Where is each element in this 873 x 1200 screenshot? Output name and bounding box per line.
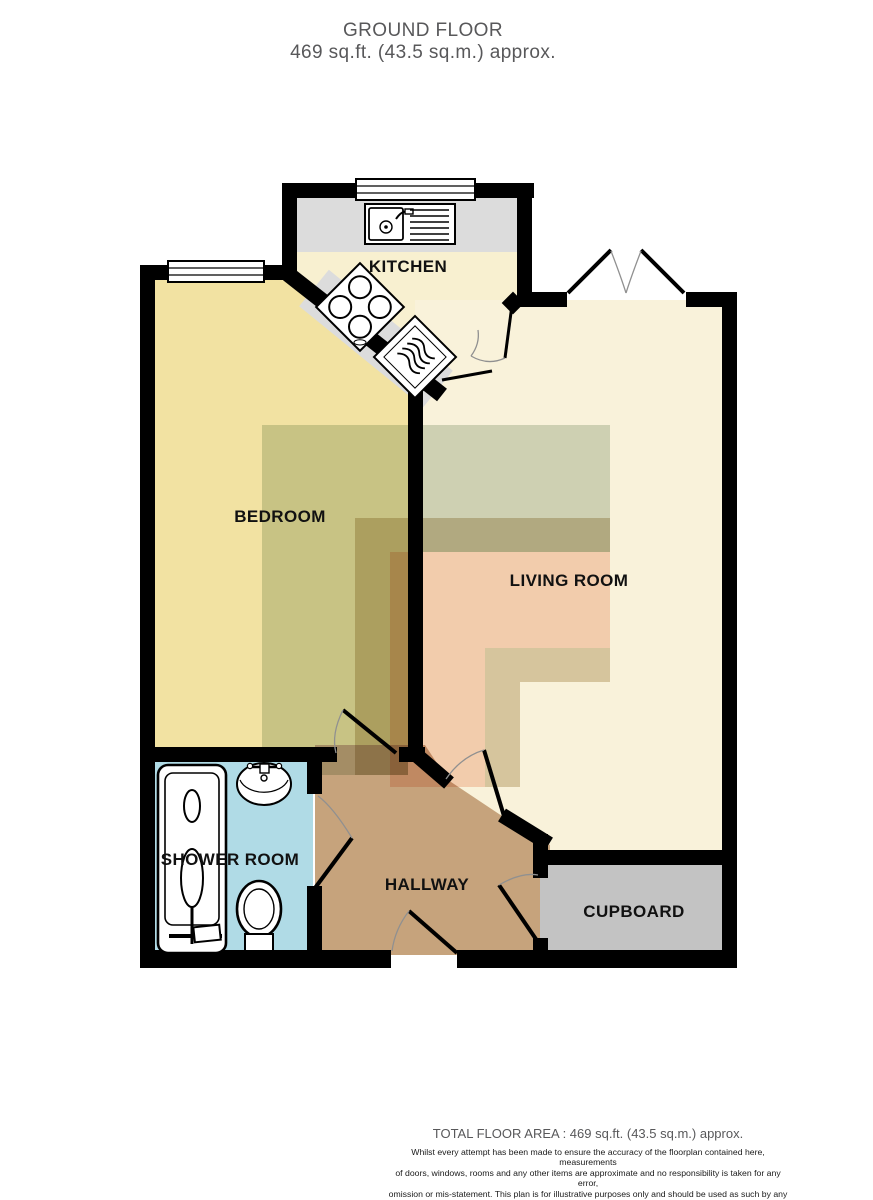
kitchen-label: KITCHEN bbox=[369, 257, 447, 276]
total-floor-area: TOTAL FLOOR AREA : 469 sq.ft. (43.5 sq.m… bbox=[388, 1126, 788, 1141]
floorplan-page: GROUND FLOOR 469 sq.ft. (43.5 sq.m.) app… bbox=[0, 0, 873, 1200]
wall-left-outer bbox=[140, 265, 155, 968]
sink-unit-icon bbox=[365, 204, 455, 244]
wall-bottom-right bbox=[457, 950, 737, 968]
wall-bedroom-living-divider bbox=[408, 362, 423, 752]
shower-room-label: SHOWER ROOM bbox=[161, 850, 300, 869]
plan-footer: TOTAL FLOOR AREA : 469 sq.ft. (43.5 sq.m… bbox=[388, 1126, 788, 1200]
hallway-label: HALLWAY bbox=[385, 875, 470, 894]
floorplan-drawing: KITCHEN BEDROOM LIVING ROOM SHOWER ROOM … bbox=[0, 0, 873, 1200]
disclaimer-line: Whilst every attempt has been made to en… bbox=[388, 1147, 788, 1168]
disclaimer-line: omission or mis-statement. This plan is … bbox=[388, 1189, 788, 1199]
wall-shower-right-upper bbox=[307, 760, 322, 794]
disclaimer-line: of doors, windows, rooms and any other i… bbox=[388, 1168, 788, 1189]
overlay-tan-living-strip bbox=[418, 518, 610, 552]
wall-right-outer bbox=[722, 292, 737, 968]
wall-shower-right-lower bbox=[307, 886, 322, 952]
patio-double-door bbox=[568, 250, 684, 293]
basin-icon bbox=[237, 763, 291, 805]
wall-kitchen-right bbox=[517, 196, 532, 307]
wall-living-top-left bbox=[517, 292, 567, 307]
cupboard-label: CUPBOARD bbox=[583, 902, 684, 921]
bedroom-label: BEDROOM bbox=[234, 507, 326, 526]
wall-bedroom-bottom-left bbox=[140, 747, 337, 762]
overlay-tan-living-low bbox=[485, 648, 610, 682]
disclaimer-text: Whilst every attempt has been made to en… bbox=[388, 1147, 788, 1200]
bedroom-window bbox=[168, 261, 264, 282]
wall-living-bottom bbox=[545, 850, 737, 865]
living-room-label: LIVING ROOM bbox=[510, 571, 629, 590]
kitchen-window bbox=[356, 179, 475, 200]
